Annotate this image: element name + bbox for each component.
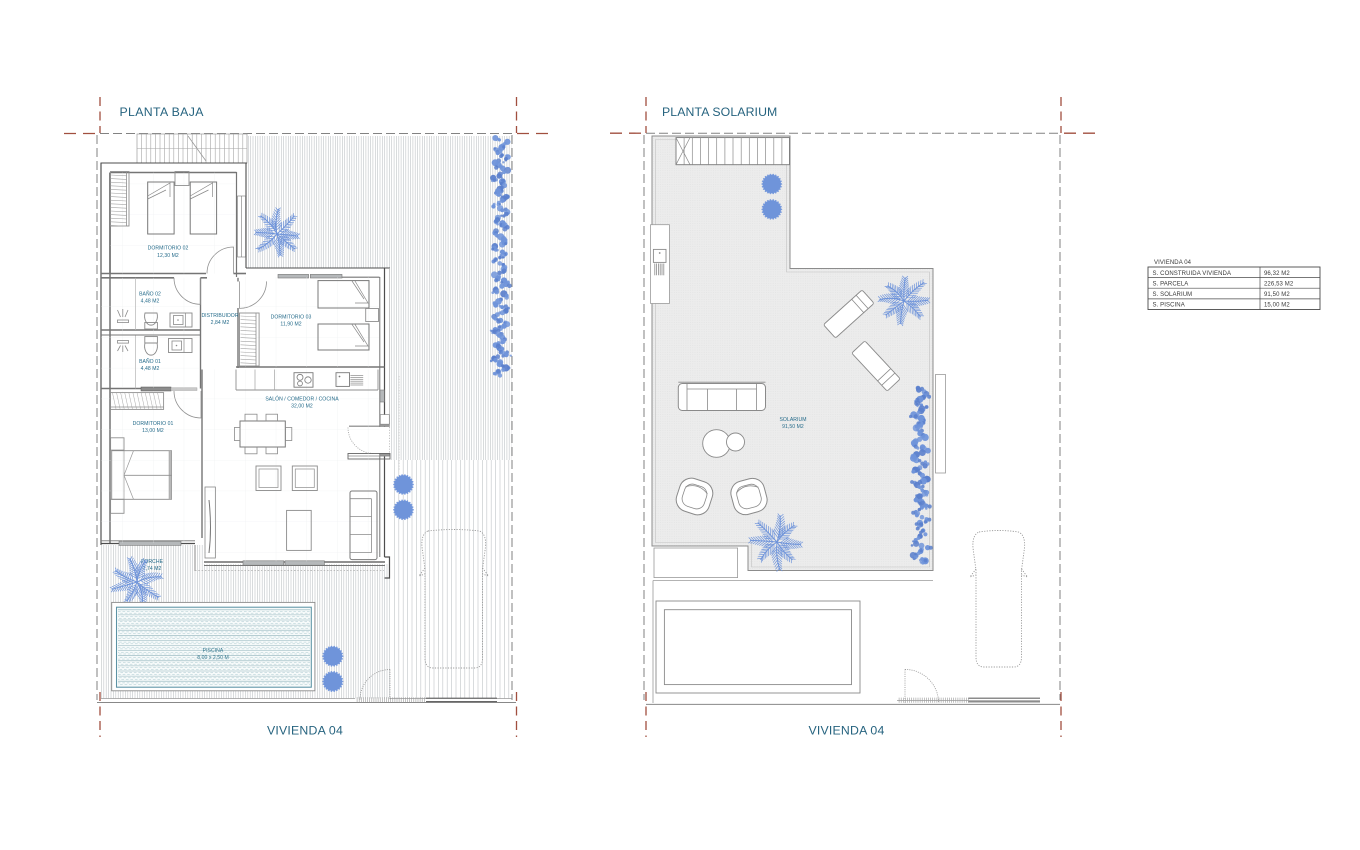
svg-text:SALÓN / COMEDOR / COCINA: SALÓN / COMEDOR / COCINA (265, 396, 339, 403)
svg-text:13,00 M2: 13,00 M2 (142, 428, 164, 434)
svg-text:S. PISCINA: S. PISCINA (1153, 303, 1185, 309)
svg-text:2,84 M2: 2,84 M2 (211, 320, 230, 326)
svg-text:VIVIENDA 04: VIVIENDA 04 (1154, 260, 1192, 266)
svg-text:91,50 M2: 91,50 M2 (782, 424, 804, 430)
svg-text:226,53 M2: 226,53 M2 (1264, 281, 1294, 287)
svg-text:SOLARIUM: SOLARIUM (779, 417, 806, 423)
svg-text:4,48 M2: 4,48 M2 (141, 299, 160, 305)
svg-text:32,00 M2: 32,00 M2 (291, 404, 313, 410)
svg-text:15,00 M2: 15,00 M2 (1264, 303, 1290, 309)
svg-text:91,50 M2: 91,50 M2 (1264, 292, 1290, 298)
svg-text:DORMITORIO 02: DORMITORIO 02 (148, 246, 189, 252)
svg-text:DISTRIBUIDOR: DISTRIBUIDOR (201, 313, 238, 319)
svg-text:96,32 M2: 96,32 M2 (1264, 271, 1290, 277)
svg-text:DORMITORIO 03: DORMITORIO 03 (271, 315, 312, 321)
svg-text:8,00 x 2,50 M: 8,00 x 2,50 M (197, 655, 229, 661)
svg-text:11,90 M2: 11,90 M2 (280, 322, 301, 328)
svg-text:12,30 M2: 12,30 M2 (157, 253, 179, 259)
svg-text:S. SOLARIUM: S. SOLARIUM (1153, 292, 1193, 298)
svg-text:DORMITORIO 01: DORMITORIO 01 (133, 421, 174, 427)
svg-text:PISCINA: PISCINA (203, 648, 224, 654)
svg-text:VIVIENDA 04: VIVIENDA 04 (808, 724, 884, 738)
svg-text:S. PARCELA: S. PARCELA (1153, 281, 1189, 287)
svg-text:BAÑO 01: BAÑO 01 (139, 358, 161, 365)
svg-text:S. CONSTRUIDA VIVIENDA: S. CONSTRUIDA VIVIENDA (1153, 271, 1232, 277)
svg-text:PLANTA SOLARIUM: PLANTA SOLARIUM (662, 105, 777, 119)
svg-text:BAÑO 02: BAÑO 02 (139, 291, 161, 298)
svg-text:VIVIENDA 04: VIVIENDA 04 (267, 724, 343, 738)
svg-text:4,48 M2: 4,48 M2 (141, 366, 160, 372)
svg-text:PLANTA BAJA: PLANTA BAJA (120, 105, 205, 119)
